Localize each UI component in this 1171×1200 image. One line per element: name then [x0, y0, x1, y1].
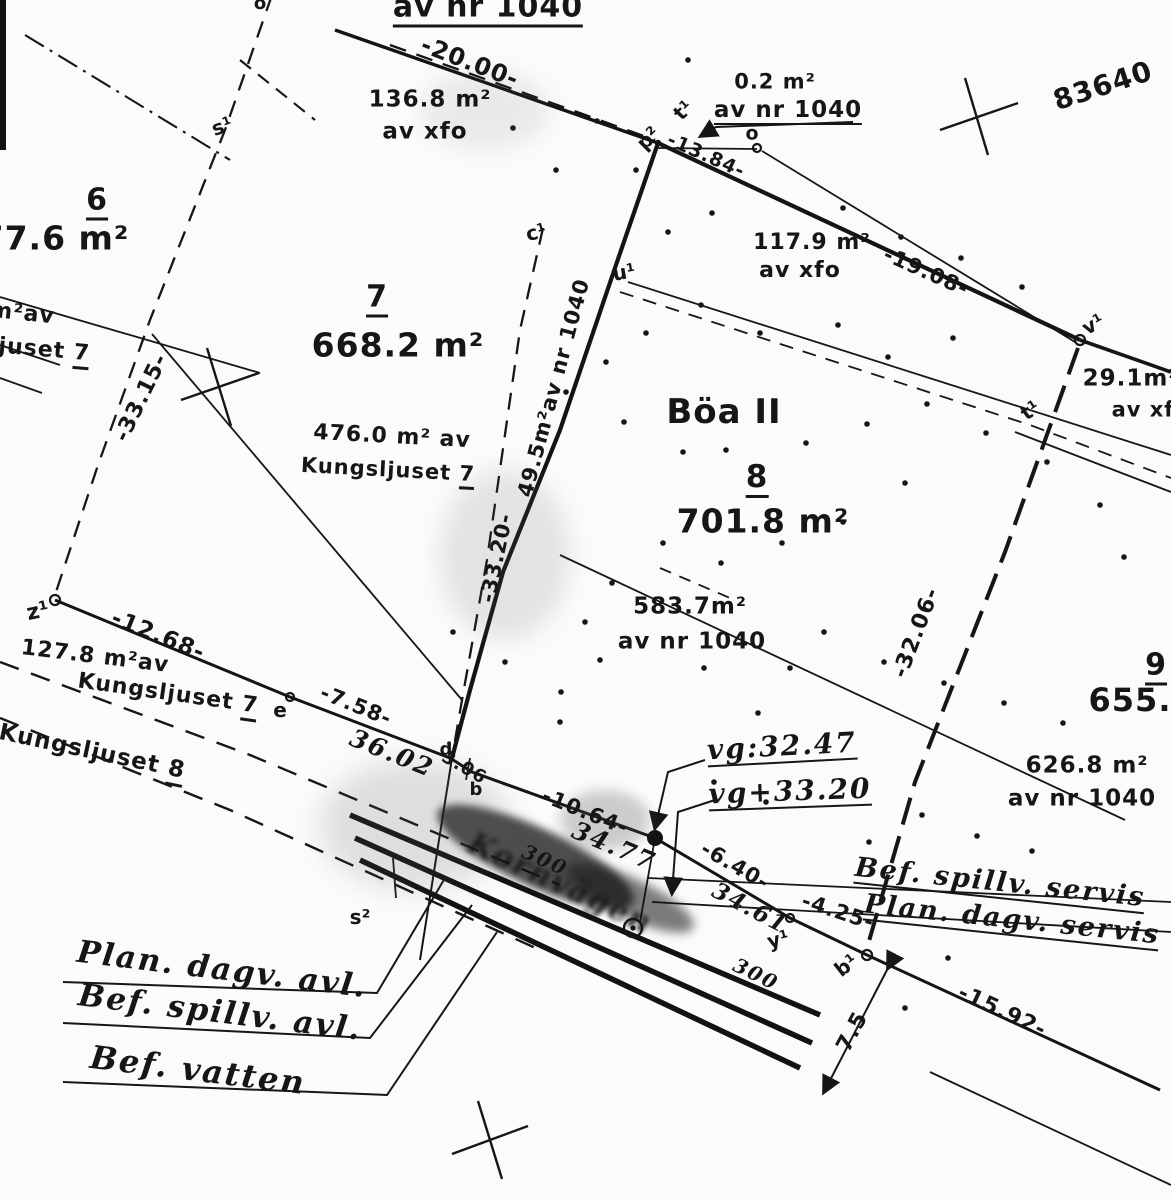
- area-label-29-1-of: av xf: [1112, 400, 1171, 421]
- area-label-0-2-of: av nr 1040: [714, 99, 862, 125]
- point-label-z1: z¹: [25, 599, 52, 625]
- area-label-0-2: 0.2 m²: [734, 72, 816, 93]
- area-label-583-7: 583.7m²: [633, 596, 747, 619]
- parcel-6-id: 6: [86, 186, 108, 221]
- point-label-e: e: [273, 700, 287, 720]
- parcel-8-area: 701.8 m²: [677, 505, 850, 538]
- area-label-117-9-of: av xfo: [759, 260, 841, 282]
- point-label-o-top: ö: [254, 0, 266, 13]
- point-label-y1: y¹: [765, 927, 791, 952]
- point-label-o: o: [745, 125, 758, 144]
- area-label-136-8: 136.8 m²: [369, 89, 492, 112]
- edge-cut-area: m²av: [0, 300, 56, 329]
- level-label-vg-33-20: vg+33.20: [708, 775, 872, 812]
- area-label-626-8: 626.8 m²: [1026, 755, 1149, 778]
- parcel-8-id: 8: [746, 462, 769, 498]
- point-label-b: b: [470, 781, 483, 799]
- area-label-29-1: 29.1m²: [1083, 368, 1171, 391]
- area-label-117-9: 117.9 m²: [753, 232, 871, 254]
- service-connection-point: [647, 830, 663, 846]
- area-label-top-nr1040: av nr 1040: [393, 0, 583, 28]
- district-name: Böa II: [666, 395, 781, 429]
- survey-cross-icon: [452, 1101, 528, 1179]
- parcel-9-area: 655.: [1089, 684, 1171, 716]
- parcel-6-area: 77.6 m²: [0, 222, 129, 255]
- area-label-626-8-of: av nr 1040: [1008, 788, 1156, 811]
- area-label-583-7-of: av nr 1040: [618, 631, 766, 654]
- parcel-7-area: 668.2 m²: [312, 329, 485, 362]
- cadastral-map: av nr 1040 -20.00- 0.2 m² av nr 1040 136…: [0, 0, 1171, 1200]
- parcel-7-id: 7: [366, 283, 388, 318]
- survey-cross-icon: [940, 78, 1018, 155]
- point-label-s2: s²: [350, 907, 371, 927]
- scan-edge-artifact: [0, 0, 6, 150]
- area-label-136-8-of: av xfo: [382, 121, 467, 144]
- point-label-u1: u¹: [611, 260, 637, 284]
